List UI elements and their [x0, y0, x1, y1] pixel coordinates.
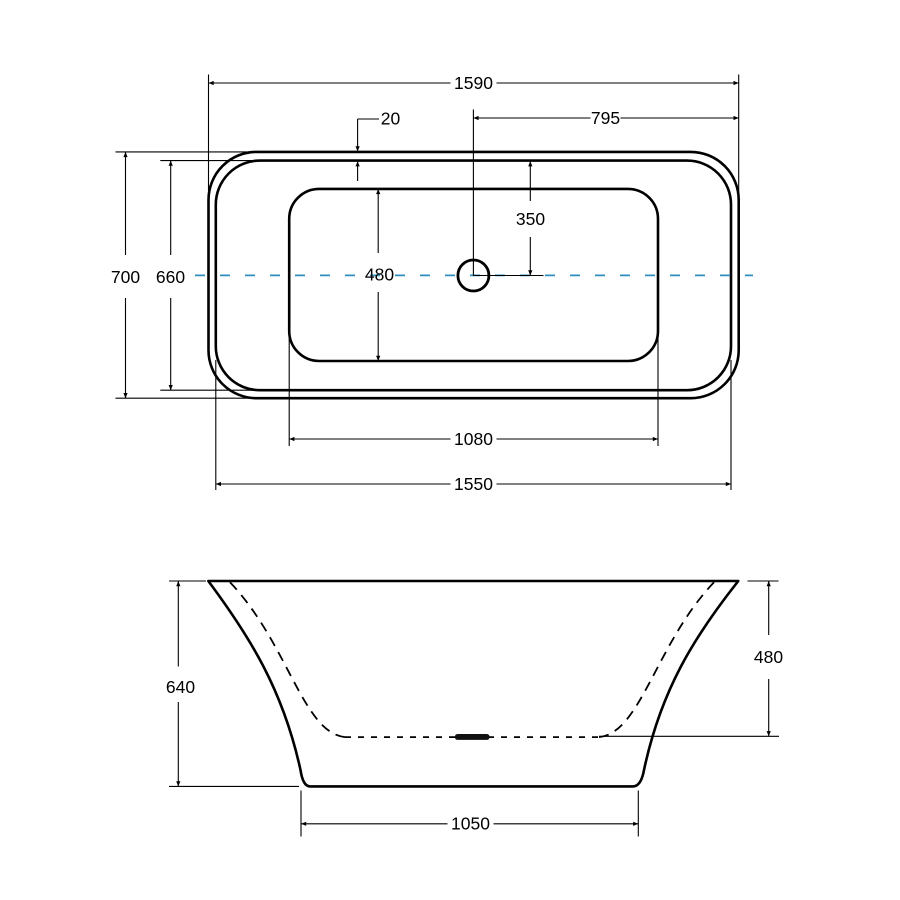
svg-text:20: 20: [381, 108, 401, 128]
svg-text:1590: 1590: [454, 73, 493, 93]
svg-text:660: 660: [156, 267, 185, 287]
svg-text:480: 480: [365, 264, 394, 284]
svg-text:1550: 1550: [454, 474, 493, 494]
svg-text:795: 795: [591, 108, 620, 128]
svg-text:640: 640: [166, 677, 195, 697]
svg-text:1080: 1080: [454, 429, 493, 449]
svg-text:480: 480: [754, 647, 783, 667]
svg-text:700: 700: [111, 267, 140, 287]
svg-text:350: 350: [516, 209, 545, 229]
svg-text:1050: 1050: [451, 814, 490, 834]
